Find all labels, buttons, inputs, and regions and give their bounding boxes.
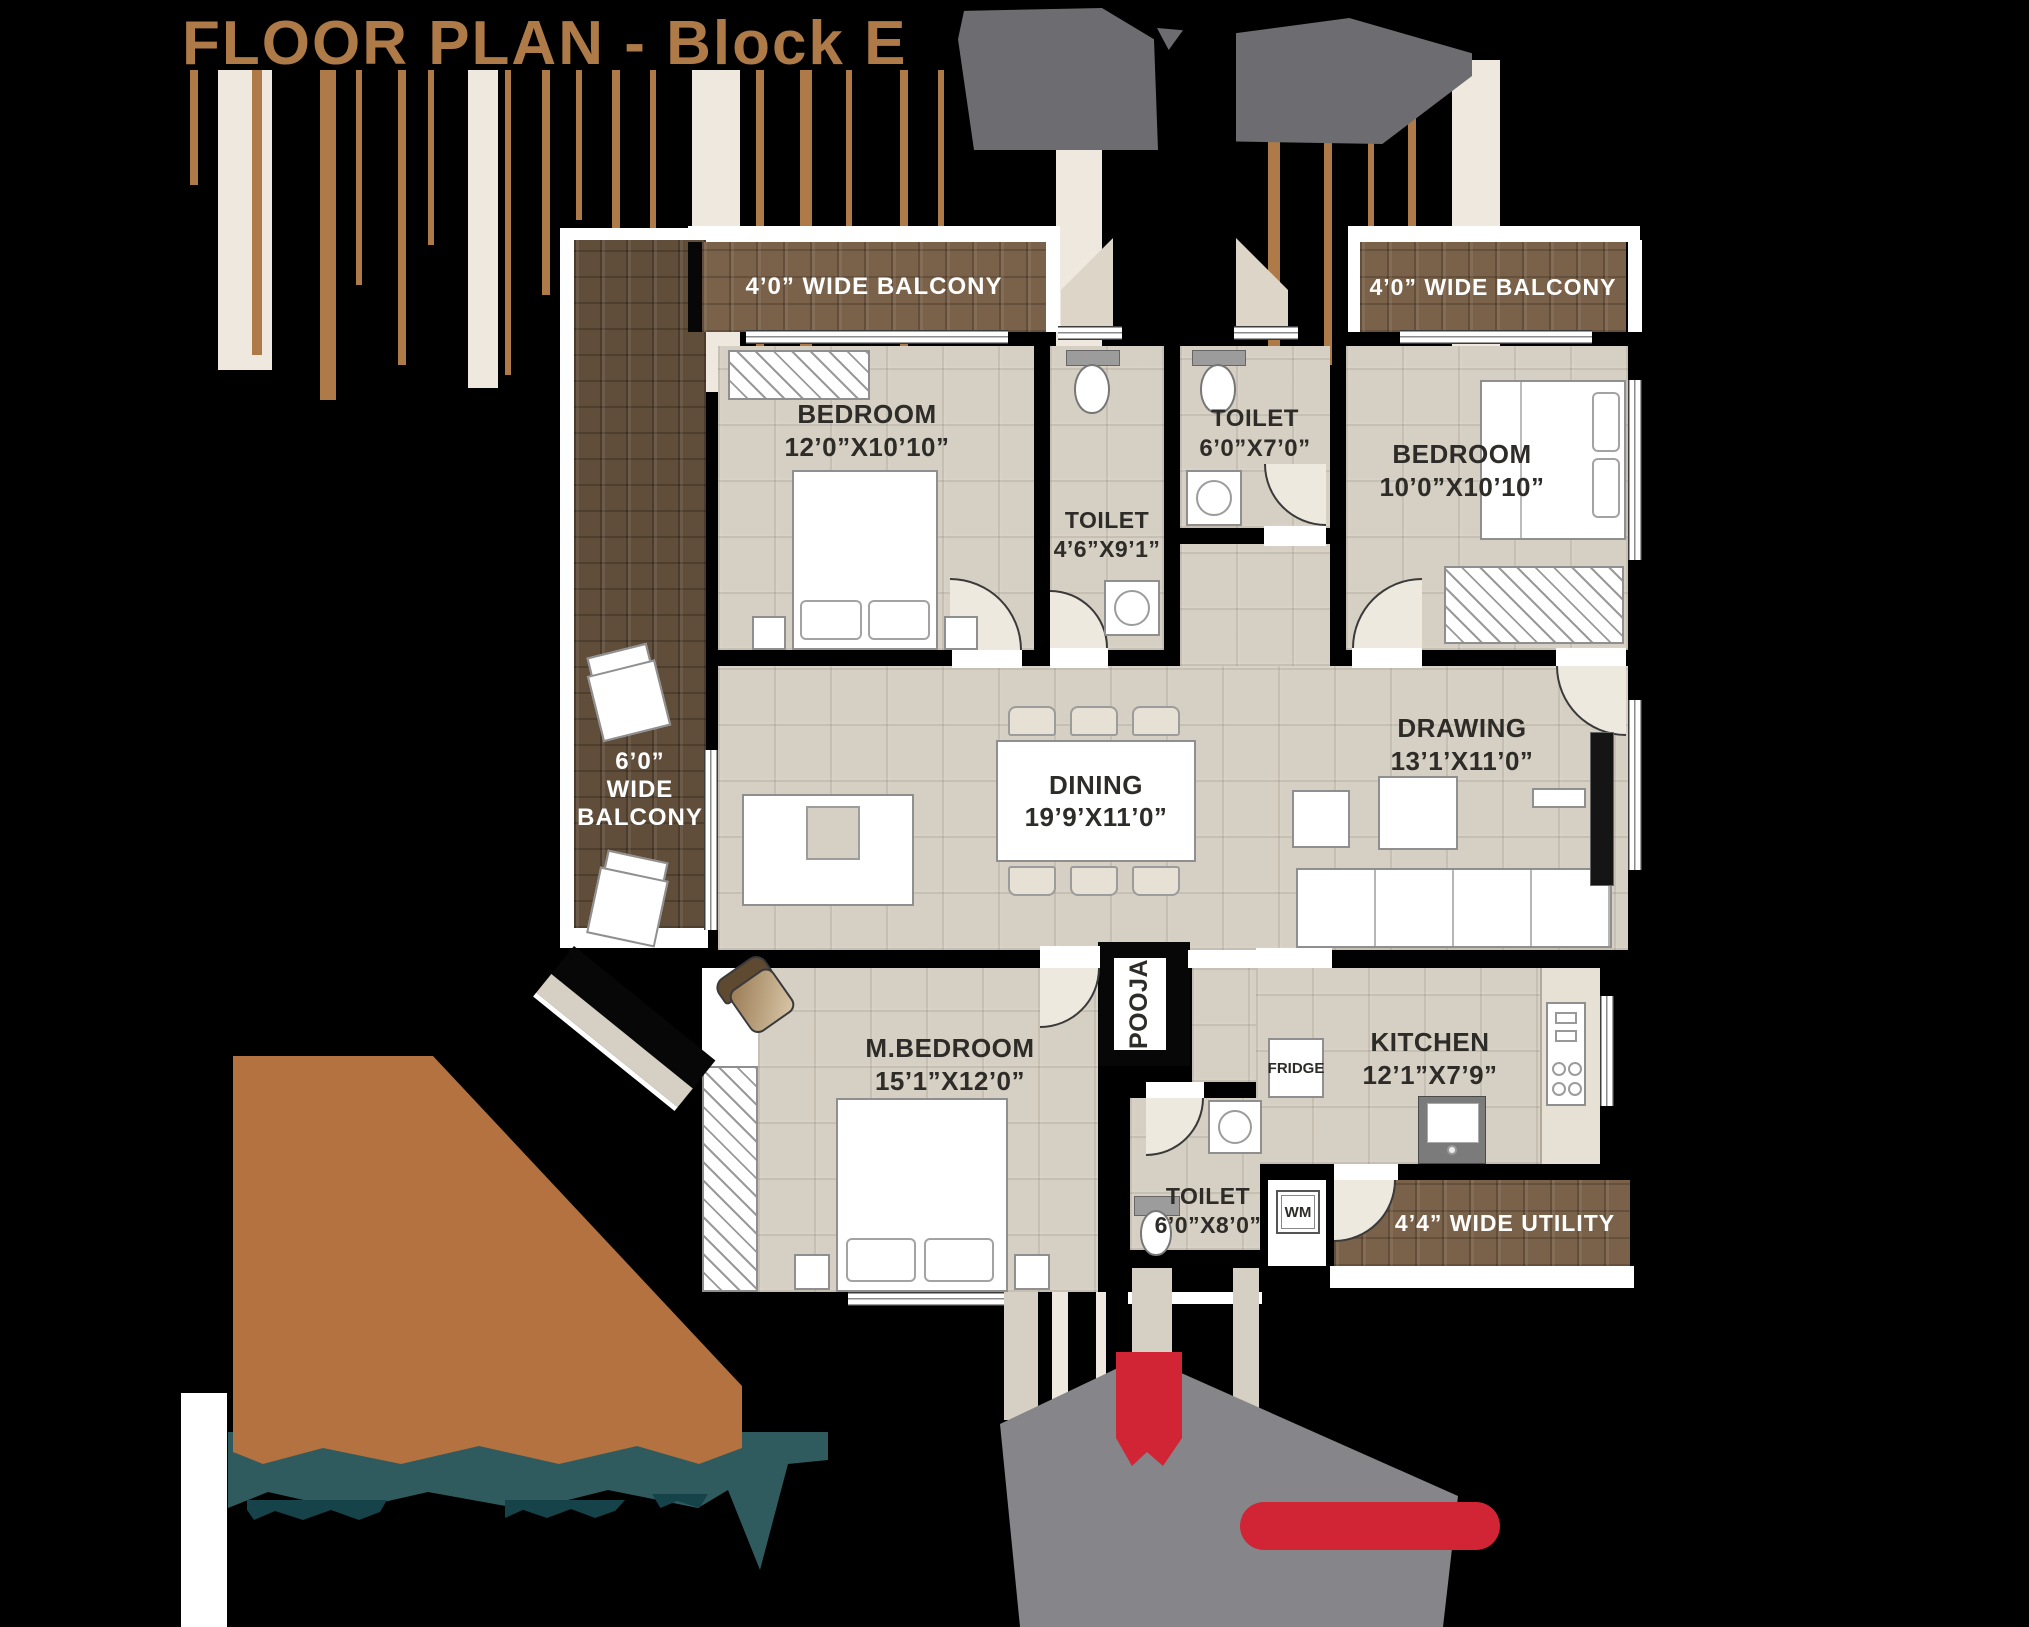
pillow [924,1238,994,1282]
pillow [800,600,862,640]
window [704,750,718,930]
balcony-top-left-label: 4’0” WIDE BALCONY [745,273,1002,301]
sofa [1296,868,1612,948]
washbasin [1104,580,1160,636]
cabinet-item [806,806,860,860]
drip-stripe [190,70,198,185]
pillow [1592,392,1620,452]
teal-text-fragment [652,1494,708,1508]
diagonal-wall [530,946,715,1115]
tv-unit [1590,732,1614,886]
side-table [1014,1254,1050,1290]
page-title: FLOOR PLAN - Block E [182,8,907,79]
balcony-frame [1046,240,1060,332]
balcony-top-right-label: 4’0” WIDE BALCONY [1369,274,1616,301]
window [1058,326,1122,340]
media-shelf [1532,788,1586,808]
door-opening [1188,950,1256,968]
wc-bowl [1074,364,1110,414]
door-opening [1264,526,1326,546]
kitchen-sink [1418,1096,1486,1164]
window [1600,996,1614,1106]
balcony-frame [1348,240,1360,332]
drip-stripe [505,70,511,375]
washbasin [1186,470,1242,526]
dining-label: DINING 19’9’X11’0” [1025,769,1168,834]
balcony-top-right: 4’0” WIDE BALCONY [1360,242,1626,332]
gray-smear-shape [1157,28,1183,50]
utility-label: 4’4” WIDE UTILITY [1349,1210,1615,1237]
corridor [1192,968,1256,1082]
window [746,330,1008,344]
side-table [944,616,978,650]
label-toilet-mid: TOILET4’6”X9’1” [1040,506,1174,564]
window [1400,330,1592,344]
door-opening [1256,948,1332,968]
dining-chair [1008,866,1056,896]
label-master-bedroom: M.BEDROOM15’1”X12’0” [810,1032,1090,1097]
door-opening [1146,1082,1204,1098]
door-opening [952,648,1022,668]
door-opening [1050,648,1108,668]
teal-text-fragment [505,1500,625,1518]
compass-needle [1116,1352,1182,1468]
drip-stripe [356,70,362,285]
corridor [1180,544,1330,666]
wm-label: WM [1285,1204,1312,1221]
wardrobe [702,1066,758,1292]
drip-stripe [252,70,262,355]
drip-stripe [542,70,550,295]
window [1628,700,1642,870]
balcony-top-left: 4’0” WIDE BALCONY [702,242,1046,332]
door-opening [1040,946,1100,968]
dining-chair [1132,866,1180,896]
drip-stripe [1052,1292,1068,1404]
washing-machine: WM [1276,1190,1320,1234]
door-opening [1334,1164,1398,1180]
label-bedroom-top-right: BEDROOM10’0”X10’10” [1352,438,1572,503]
washbasin [1208,1100,1262,1154]
gray-smear-shape [1236,18,1472,144]
drip-stripe [576,70,582,220]
white-strip [181,1393,227,1627]
pillow [1592,458,1620,518]
dining-chair [1070,866,1118,896]
pillow [868,600,930,640]
window [848,1292,1004,1306]
dining-chair [1008,706,1056,736]
drip-stripe [218,70,272,370]
side-table [794,1254,830,1290]
vent-shaft [1236,238,1288,338]
drip-stripe [1233,1268,1259,1418]
label-toilet-bottom: TOILET6’0”X8’0” [1150,1182,1266,1240]
label-kitchen: KITCHEN12’1”X7’9” [1330,1026,1530,1091]
wardrobe [1444,566,1624,644]
dining-chair [1070,706,1118,736]
pooja-label: POOJA [1124,959,1155,1049]
balcony-frame [560,228,574,948]
label-bedroom-top-left: BEDROOM12’0”X10’10” [742,398,992,463]
red-bar [1240,1502,1500,1550]
label-drawing: DRAWING13’1’X11’0” [1352,712,1572,777]
dining-chair [1132,706,1180,736]
door-opening [1556,648,1626,668]
floor-plan-page: FLOOR PLAN - Block E 4’0” WIDE BALCONY 4… [0,0,2029,1627]
orange-smear-blob [233,1056,745,1476]
armchair [1292,790,1350,848]
pillow [846,1238,916,1282]
compass-gray-shape [998,1354,1460,1627]
side-table [752,616,786,650]
drip-stripe [1004,1292,1038,1420]
drip-stripe [468,70,498,388]
drip-stripe [1096,1292,1106,1388]
drip-stripe [428,70,434,245]
fridge-label: FRIDGE [1268,1060,1325,1077]
door-opening [1352,648,1422,668]
balcony-frame [1348,226,1640,242]
label-toilet-top: TOILET6’0”X7’0” [1176,404,1334,464]
gray-smear-shape [958,8,1158,150]
drip-stripe [320,70,336,400]
wardrobe [728,350,870,400]
room-pooja: POOJA [1114,958,1166,1050]
balcony-frame [688,226,1060,242]
drip-stripe [398,70,406,365]
balcony-frame [1628,240,1642,332]
utility-frame [1330,1266,1634,1288]
teal-text-fragment [247,1500,387,1520]
dining-table: DINING 19’9’X11’0” [996,740,1196,862]
coffee-table [1378,776,1458,850]
window [1628,380,1642,560]
window [1234,326,1298,340]
balcony-left-label: 6’0” WIDE BALCONY [574,730,706,850]
stove [1546,1002,1586,1106]
fridge: FRIDGE [1268,1038,1324,1098]
